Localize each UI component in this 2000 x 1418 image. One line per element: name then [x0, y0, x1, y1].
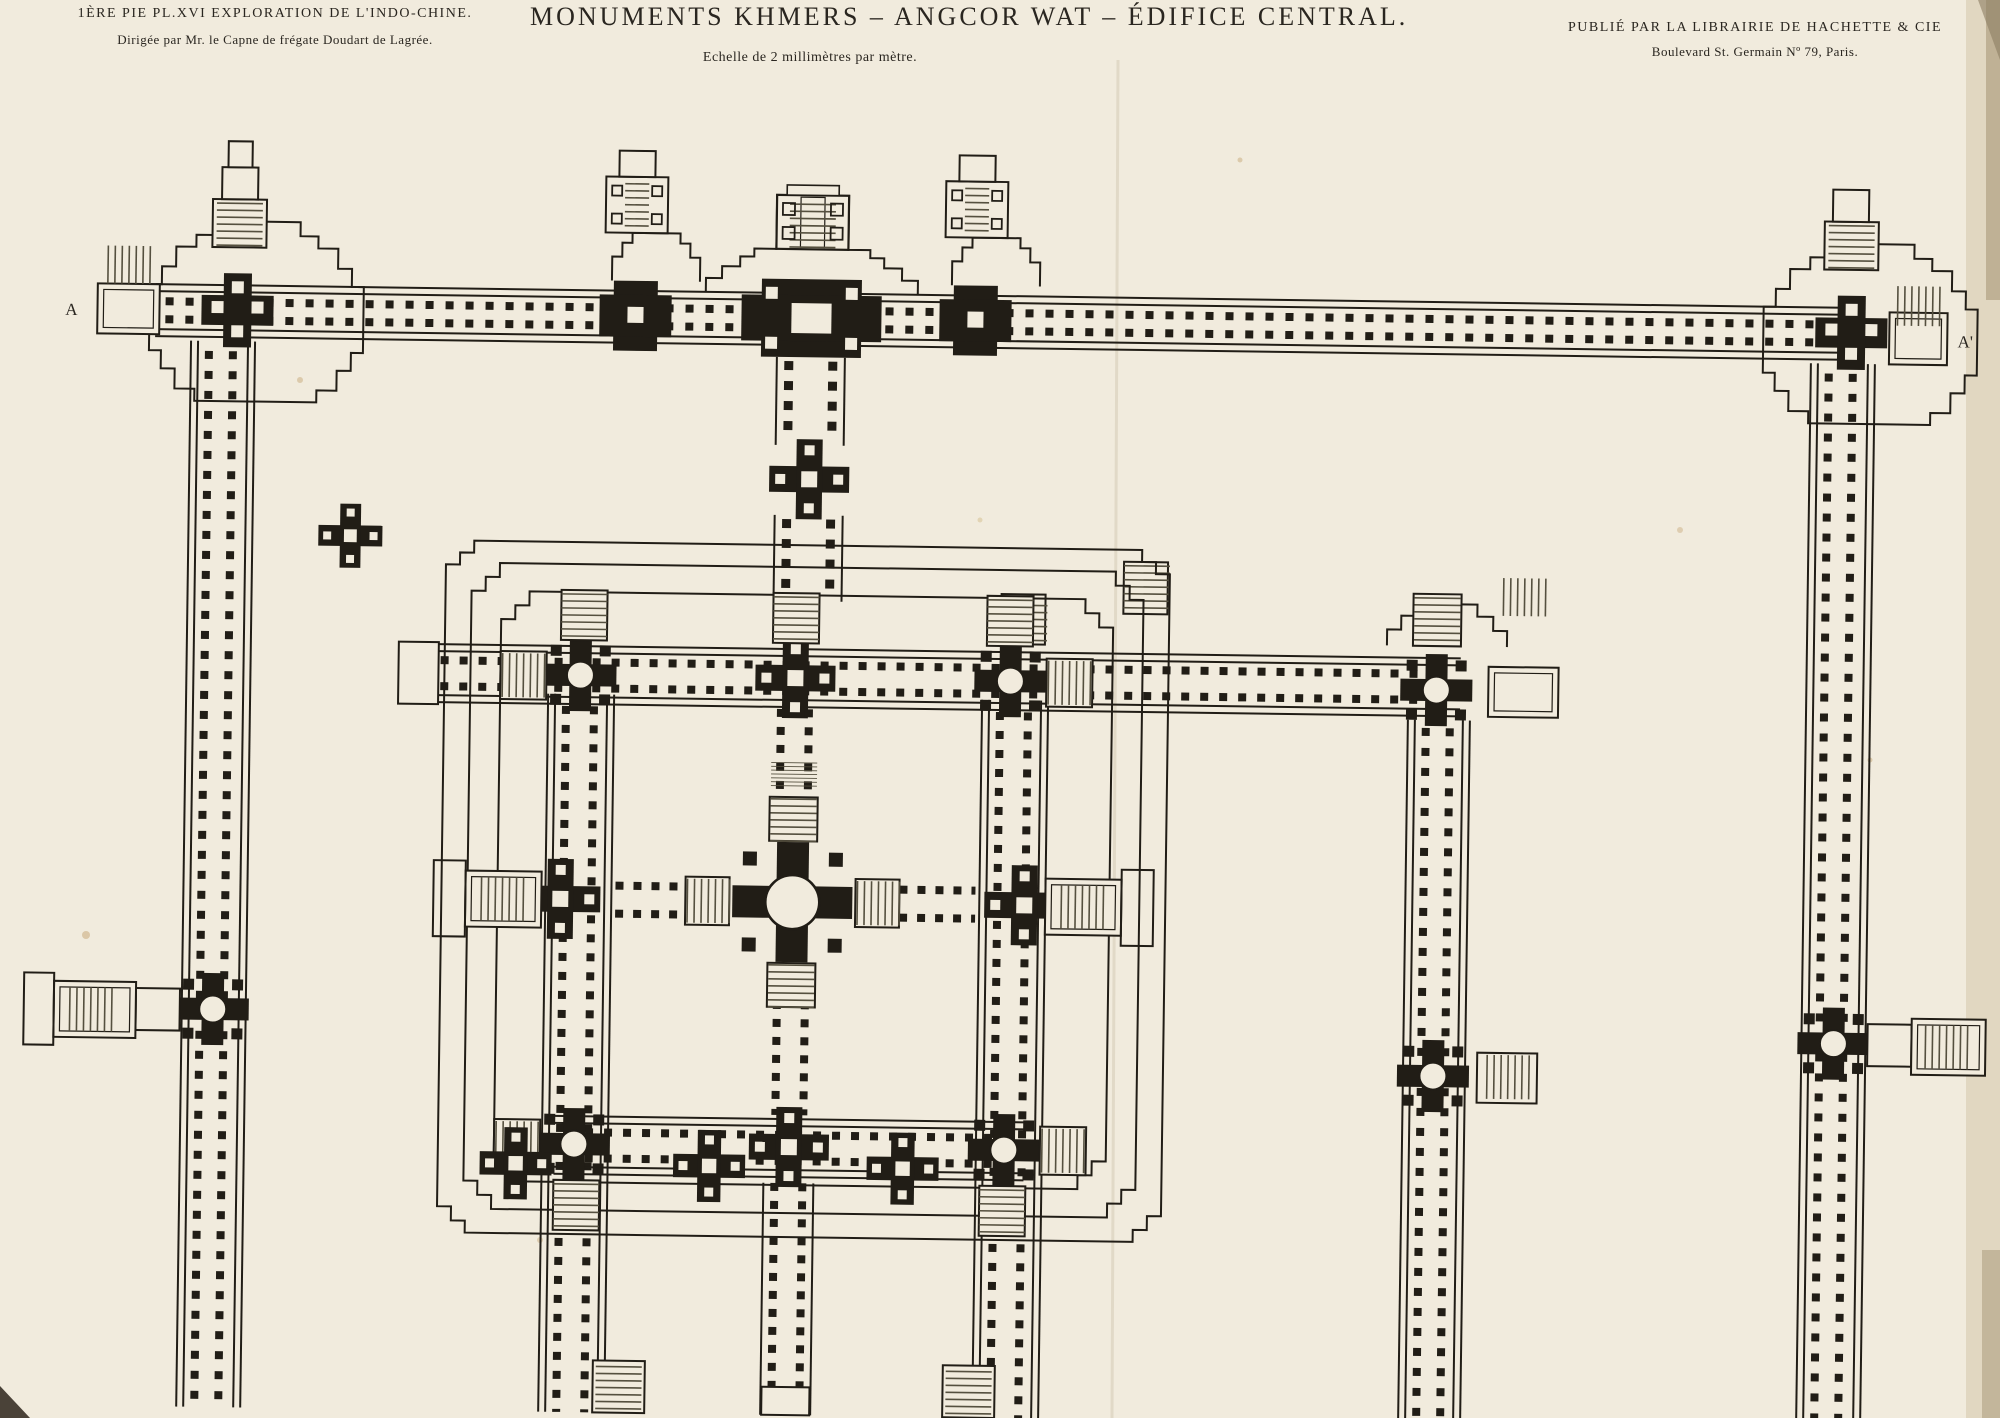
central-tower — [684, 796, 901, 1009]
outer-gallery-south-side — [18, 338, 258, 1407]
outer-gallery-north-side — [1792, 363, 1995, 1418]
section-marker-a-prime: A' — [1957, 332, 1973, 351]
grand-west-gopura — [701, 184, 919, 603]
bakan-east-gallery — [972, 700, 1048, 1418]
west-gopura-right — [939, 155, 1042, 356]
west-gopura-left — [599, 150, 702, 351]
engraved-plate: { "plate": { "series_line": "1ÈRE PIE PL… — [0, 0, 2000, 1418]
middle-gallery-west-side — [316, 503, 1463, 718]
bakan-west-gallery — [538, 694, 614, 1413]
section-marker-a: A — [65, 300, 78, 319]
outer-corner-pavilion-left: A — [64, 139, 366, 403]
middle-gallery-north-corner — [1376, 576, 1560, 1418]
plan-drawing: A A' — [0, 0, 2000, 1418]
